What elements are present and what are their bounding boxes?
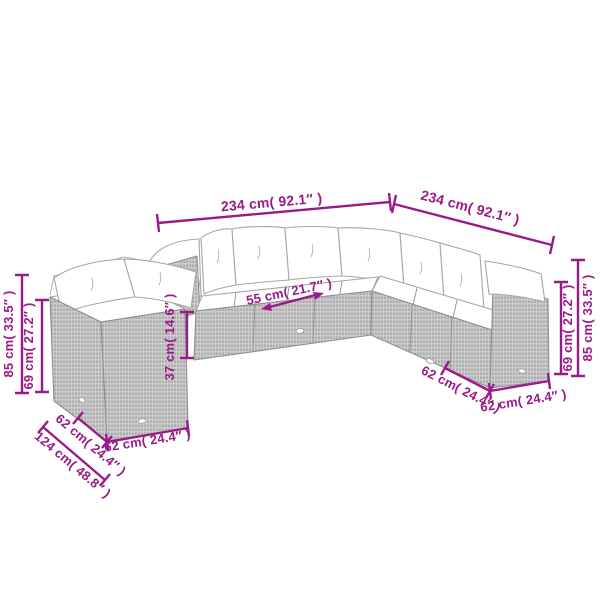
dimension-label-left-total-depth: 124 cm( 48.8″ ): [32, 428, 114, 500]
dimension-label-left-frame-height: 69 cm( 27.2″ ): [21, 302, 36, 389]
measurement-right-frame-height: 69 cm( 27.2″ ): [554, 282, 575, 374]
dimension-label-left-back-height: 85 cm( 33.5″ ): [1, 290, 16, 377]
dimension-line: [35, 300, 49, 392]
vent-hole: [518, 368, 526, 373]
measurement-total-front: 234 cm( 92.1″ ): [157, 190, 391, 232]
dimension-label-right-back-height: 85 cm( 33.5″ ): [580, 274, 595, 361]
dimension-label-right-frame-height: 69 cm( 27.2″ ): [560, 284, 575, 371]
dimension-label-total-front: 234 cm( 92.1″ ): [220, 190, 323, 215]
corner-chair-line-art: [50, 257, 201, 441]
back-cushion: [232, 227, 289, 285]
dimension-label-seat-height: 37 cm( 14.6″ ): [162, 293, 177, 380]
right-armrest-panel: [490, 288, 549, 388]
main-sofa-line-art: [149, 227, 549, 389]
back-cushion: [285, 227, 342, 281]
vent-hole: [296, 328, 305, 334]
back-cushion: [201, 229, 236, 294]
measurement-left-frame-height: 69 cm( 27.2″ ): [21, 300, 49, 392]
product-dimension-diagram: 234 cm( 92.1″ ) 234 cm( 92.1″ ) 69 cm( 2…: [0, 0, 600, 600]
dimension-label-total-right: 234 cm( 92.1″ ): [419, 187, 521, 228]
diagram-canvas: 234 cm( 92.1″ ) 234 cm( 92.1″ ) 69 cm( 2…: [0, 0, 600, 600]
